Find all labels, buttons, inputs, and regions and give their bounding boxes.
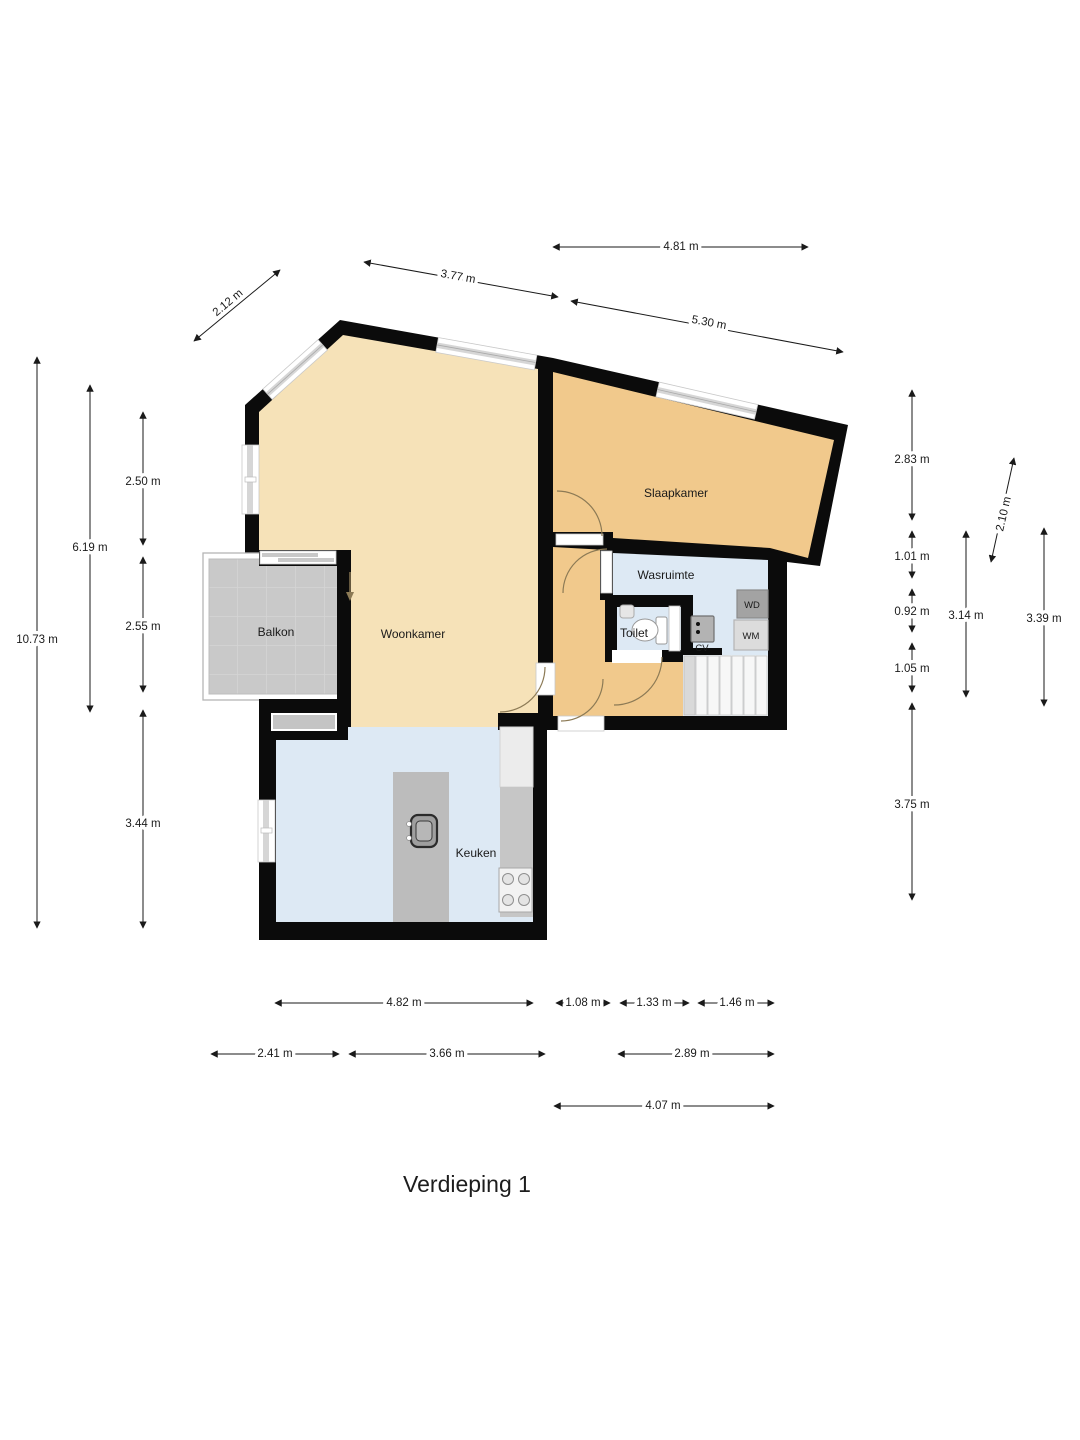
dimension-label: 5.30 m <box>691 314 728 332</box>
room-label-woonkamer: Woonkamer <box>381 627 445 641</box>
door-entrance <box>558 716 604 731</box>
dimension: 2.55 m <box>125 557 160 692</box>
dimension-label: 2.55 m <box>125 621 160 633</box>
dimension-label: 6.19 m <box>72 542 107 554</box>
dimension: 3.66 m <box>349 1048 545 1060</box>
dimension-label: 4.82 m <box>386 997 421 1009</box>
staircase <box>683 655 768 716</box>
dimension: 2.89 m <box>618 1048 774 1060</box>
room-label-balkon: Balkon <box>258 625 295 639</box>
dimension: 3.39 m <box>1026 528 1061 706</box>
dimension-label: 3.39 m <box>1026 613 1061 625</box>
floorplan-canvas: 2.12 m3.77 m4.81 m5.30 m10.73 m6.19 m2.5… <box>0 0 1080 1440</box>
dimension-label: 3.14 m <box>948 610 983 622</box>
dimension: 1.08 m <box>556 997 610 1009</box>
dimension-label: 2.41 m <box>257 1048 292 1060</box>
toilet-door-gap <box>612 650 662 663</box>
dimension-label: 3.77 m <box>440 268 477 286</box>
cv-dot-icon <box>696 630 700 634</box>
faucet-icon <box>407 836 412 841</box>
dimension: 3.75 m <box>894 703 929 900</box>
page-title: Verdieping 1 <box>403 1171 531 1197</box>
dimension: 0.92 m <box>894 589 929 632</box>
dimension: 3.14 m <box>948 531 983 697</box>
dimension-label: 1.05 m <box>894 663 929 675</box>
dimension: 1.01 m <box>894 531 929 578</box>
dimension-label: 3.66 m <box>429 1048 464 1060</box>
dimension: 2.10 m <box>991 458 1014 562</box>
dimension-label: 3.75 m <box>894 799 929 811</box>
dimension-label: 4.07 m <box>645 1100 680 1112</box>
sink-basin <box>416 821 432 841</box>
dimension-label: 4.81 m <box>663 241 698 253</box>
dimension: 2.41 m <box>211 1048 339 1060</box>
boiler-cv-box <box>691 616 714 642</box>
room-label-slaapkamer: Slaapkamer <box>644 486 708 500</box>
dimension: 4.81 m <box>553 241 808 253</box>
dimension: 4.82 m <box>275 997 533 1009</box>
dimension: 1.05 m <box>894 643 929 692</box>
room-label-keuken: Keuken <box>456 846 497 860</box>
toilet-sink-icon <box>620 605 634 618</box>
dimension: 10.73 m <box>16 357 58 928</box>
dimension-label: 2.10 m <box>994 496 1014 533</box>
wall-balcony-side <box>337 550 351 713</box>
appliance-label-cv: CV <box>695 643 709 654</box>
dimension: 5.30 m <box>571 301 843 352</box>
dimension: 4.07 m <box>554 1100 774 1112</box>
appliance-label-wd: WD <box>744 600 760 611</box>
dimension: 3.44 m <box>125 710 160 928</box>
dimension-label: 3.44 m <box>125 818 160 830</box>
dimension-label: 1.08 m <box>565 997 600 1009</box>
dimension: 6.19 m <box>72 385 107 712</box>
dimension-label: 2.89 m <box>674 1048 709 1060</box>
dimension-label: 2.83 m <box>894 454 929 466</box>
dimension-label: 0.92 m <box>894 606 929 618</box>
dimension: 3.77 m <box>364 262 558 297</box>
dimension: 1.46 m <box>698 997 774 1009</box>
burner-icon <box>503 895 514 906</box>
burner-icon <box>503 874 514 885</box>
dimension-label: 1.01 m <box>894 551 929 563</box>
floorplan-page: 2.12 m3.77 m4.81 m5.30 m10.73 m6.19 m2.5… <box>0 0 1080 1440</box>
dimension-label: 1.46 m <box>719 997 754 1009</box>
dimension-label: 2.50 m <box>125 476 160 488</box>
room-label-wasruimte: Wasruimte <box>638 568 695 582</box>
balcony-sliding-door <box>260 551 336 564</box>
dimension-label: 1.33 m <box>636 997 671 1009</box>
door-slaapkamer <box>556 534 603 545</box>
window-left-wall <box>242 445 259 514</box>
toilet-door-leaf <box>669 606 680 651</box>
dimension-label: 10.73 m <box>16 634 58 646</box>
kitchen-counter-top <box>500 727 533 787</box>
dimension: 2.50 m <box>125 412 160 545</box>
dimension: 2.83 m <box>894 390 929 520</box>
appliance-label-wm: WM <box>743 631 760 642</box>
door-wasruimte <box>601 551 612 593</box>
cv-dot-icon <box>696 622 700 626</box>
dimension: 2.12 m <box>194 270 280 341</box>
burner-icon <box>519 874 530 885</box>
burner-icon <box>519 895 530 906</box>
window-kitchen-left <box>258 800 275 862</box>
planter-block <box>259 699 348 740</box>
room-label-toilet: Toilet <box>620 626 649 640</box>
dimension: 1.33 m <box>620 997 689 1009</box>
faucet-icon <box>407 822 412 827</box>
